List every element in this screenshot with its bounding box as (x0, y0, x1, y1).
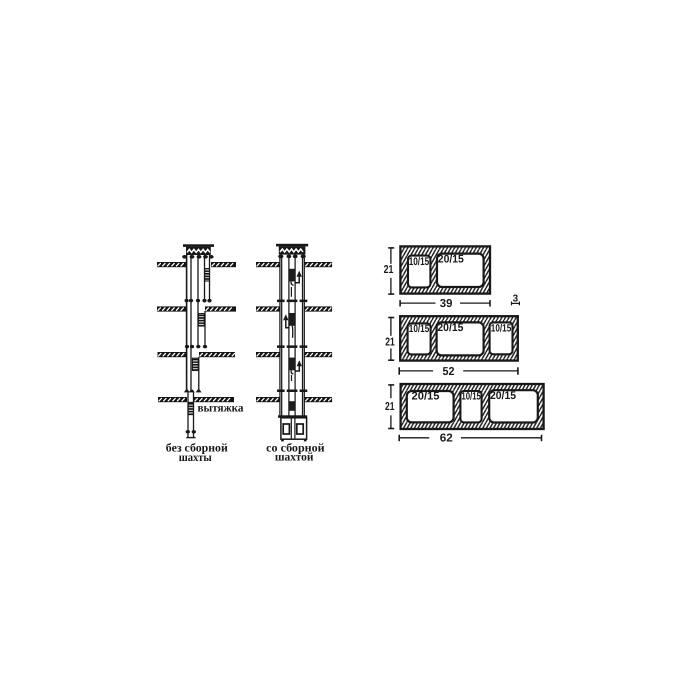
svg-text:шахты: шахты (179, 450, 212, 464)
svg-text:39: 39 (440, 298, 453, 310)
svg-text:шахтой: шахтой (275, 449, 314, 463)
svg-text:52: 52 (443, 366, 455, 378)
svg-text:21: 21 (384, 264, 394, 276)
svg-text:20/15: 20/15 (437, 322, 463, 334)
svg-text:10/15: 10/15 (491, 323, 512, 335)
svg-text:21: 21 (385, 401, 395, 413)
svg-text:20/15: 20/15 (490, 390, 516, 402)
svg-text:10/15: 10/15 (409, 323, 430, 335)
svg-text:20/15: 20/15 (438, 253, 464, 265)
svg-text:3: 3 (513, 293, 519, 304)
svg-text:62: 62 (440, 432, 453, 444)
svg-text:вытяжка: вытяжка (198, 401, 244, 415)
svg-text:10/15: 10/15 (461, 391, 481, 403)
svg-text:10/15: 10/15 (409, 256, 430, 268)
svg-text:21: 21 (385, 336, 395, 348)
svg-text:20/15: 20/15 (412, 390, 440, 402)
